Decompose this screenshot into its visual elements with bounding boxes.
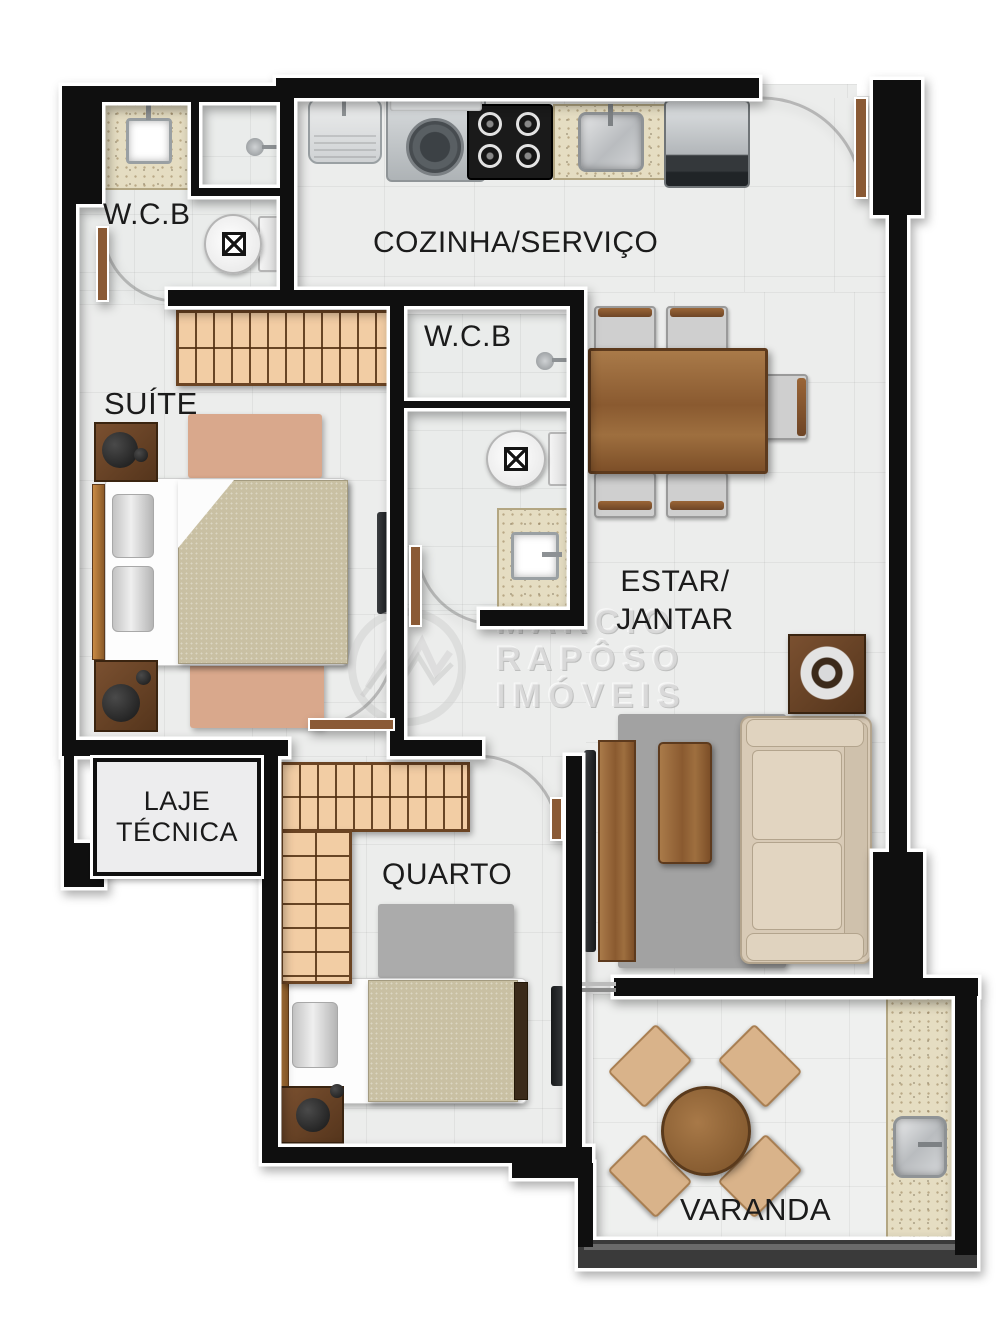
dining-chair: [666, 472, 728, 518]
kitchen-faucet-icon: [608, 104, 613, 126]
cooktop-burner: [516, 144, 540, 168]
bathroom-middle-label: W.C.B: [424, 320, 512, 354]
bathroom-top-shower-arm: [262, 145, 280, 149]
bedroom-tv-icon: [551, 986, 564, 1086]
watermark-logo-icon: [348, 608, 466, 726]
cooktop-burner: [478, 144, 502, 168]
suite-blanket-fold: [178, 480, 234, 548]
balcony-faucet-icon: [918, 1142, 942, 1147]
bedroom-pillow: [292, 1002, 338, 1068]
bathroom-top-label: W.C.B: [103, 198, 191, 232]
cooktop-burner: [478, 112, 502, 136]
suite-lamp-bottom-small-icon: [136, 670, 151, 685]
suite-pillow-top: [112, 494, 154, 558]
suite-label: SUÍTE: [104, 386, 198, 422]
bathroom-top-toilet-symbol: [222, 232, 246, 256]
suite-lamp-top-icon: [102, 432, 138, 468]
watermark-logo-zigzag-icon: [356, 616, 458, 718]
dining-chair-back: [797, 378, 806, 436]
kitchen-label: COZINHA/SERVIÇO: [373, 226, 658, 260]
laundry-tub-ridges: [314, 130, 376, 158]
balcony-sink: [893, 1116, 947, 1178]
technical-slab-label-line2: TÉCNICA: [116, 817, 238, 848]
bedroom-label: QUARTO: [382, 858, 512, 892]
bedroom-rug: [378, 904, 514, 978]
fridge: [664, 100, 750, 188]
bedroom-wardrobe-side: [280, 830, 352, 984]
balcony-round-table: [661, 1086, 751, 1176]
bedroom-bed-footboard: [514, 982, 528, 1100]
tv-rack: [598, 740, 636, 962]
bedroom-lamp-small-icon: [330, 1084, 344, 1098]
bedroom-wardrobe-top: [280, 762, 470, 832]
dining-chair: [594, 472, 656, 518]
sofa-cushion: [752, 750, 842, 840]
dining-chair-back: [598, 308, 652, 317]
dining-table: [588, 348, 768, 474]
floor-plan: LAJE TÉCNICA: [0, 0, 1000, 1325]
living-label-line2: JANTAR: [600, 601, 750, 639]
bathroom-middle-shower-arm: [552, 358, 570, 362]
living-dining-label: ESTAR/ JANTAR: [600, 563, 750, 639]
fan-icon: [799, 645, 855, 701]
living-tv-icon: [584, 750, 596, 952]
suite-rug-bottom: [190, 664, 324, 728]
sofa-backrest: [844, 722, 868, 958]
suite-rug-top: [188, 414, 322, 478]
watermark-line3: IMÓVEIS: [496, 678, 687, 715]
balcony-label: VARANDA: [680, 1192, 831, 1228]
bathroom-middle-toilet-symbol: [504, 447, 528, 471]
bedroom-bed-blanket: [368, 980, 518, 1102]
living-label-line1: ESTAR/: [600, 563, 750, 601]
dining-chair-back: [670, 308, 724, 317]
bathroom-top-faucet-icon: [146, 100, 151, 120]
sofa-cushion: [752, 842, 842, 930]
washing-machine-panel: [390, 99, 482, 111]
dining-chair-back: [598, 501, 652, 510]
bathroom-middle-toilet-tank: [548, 432, 570, 486]
suite-bed-headboard: [92, 484, 105, 660]
sofa-armrest-bottom: [746, 933, 864, 961]
washing-machine-drum: [406, 118, 464, 176]
coffee-table: [658, 742, 712, 864]
bathroom-top-sink: [126, 118, 172, 164]
dining-chair-back: [670, 501, 724, 510]
suite-pillow-bottom: [112, 566, 154, 632]
technical-slab-label-line1: LAJE: [116, 786, 238, 817]
sofa-armrest-top: [746, 719, 864, 747]
watermark-line2: RAPÔSO: [496, 641, 687, 678]
bedroom-lamp-icon: [296, 1098, 330, 1132]
bathroom-middle-faucet-icon: [542, 552, 562, 557]
balcony-railing: [578, 1240, 977, 1268]
laundry-tub-faucet-icon: [342, 98, 346, 116]
suite-lamp-top-small-icon: [134, 448, 148, 462]
suite-lamp-bottom-icon: [102, 684, 140, 722]
sliding-door: [582, 982, 616, 992]
cooktop-burner: [516, 112, 540, 136]
suite-wardrobe: [176, 310, 392, 386]
floor-entrance-doorway: [757, 84, 857, 98]
technical-slab-box: LAJE TÉCNICA: [93, 758, 261, 876]
bedroom-bed-headboard: [280, 982, 289, 1100]
